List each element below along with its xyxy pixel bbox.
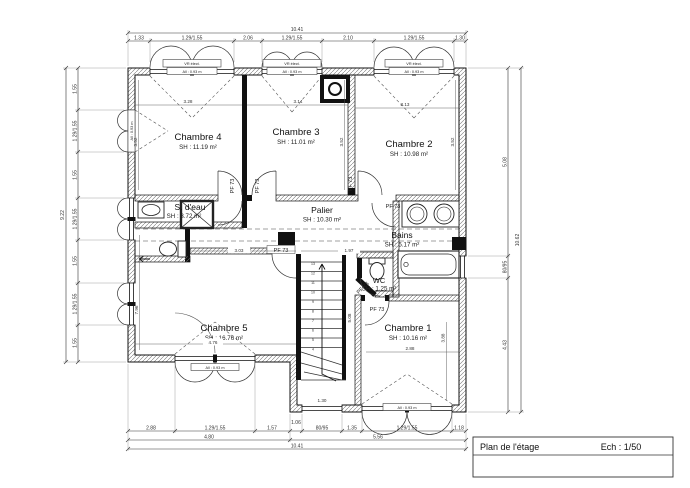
stair-step-number: 11 [311, 281, 315, 285]
dim-bottom-seg: 1.18 [454, 426, 464, 432]
dim-c1-height: 3.88 [441, 333, 446, 342]
dim-hall-east: 1.97 [345, 248, 354, 253]
window-swing-dashed [262, 76, 322, 112]
door-label-pf73: PF 73 [370, 307, 385, 313]
window-sill-label: All : 0.93 m [206, 366, 225, 370]
dim-right-seg: 4.43 [503, 340, 509, 350]
stair-step-number: 9 [312, 300, 314, 304]
dim-left-seg: 1.55 [73, 338, 79, 348]
room-area-chambre1: SH : 10.16 m² [389, 335, 427, 342]
dim-top-seg: 2.06 [243, 36, 253, 42]
stair-step-number: 4 [312, 348, 314, 352]
room-label-palier: Palier [311, 205, 333, 215]
door-chambre5 [272, 254, 296, 278]
room-area-sdeau: SH : 3.72 m² [167, 213, 202, 220]
dim-c2-width: 3.13 [401, 102, 410, 107]
window-swing-dashed [135, 110, 168, 152]
winder-treads [301, 352, 346, 380]
dim-bottom-seg: 1.35 [347, 426, 357, 432]
floor-plan-svg: VR élect. All : 0.93 m VR élect. All : 0… [0, 0, 690, 488]
stair-step-number: 10 [311, 291, 315, 295]
shutter-arcs [118, 110, 129, 152]
room-label-sdeau: S. d'eau [175, 202, 206, 212]
stair-step-number: 13 [311, 262, 315, 266]
window-swing-dashed [374, 76, 454, 118]
bathtub [398, 251, 459, 278]
dim-bottom-seg: 1.29/1.55 [397, 426, 418, 432]
stair-step-number: 8 [312, 310, 314, 314]
dim-top-seg: 2.10 [343, 36, 353, 42]
dim-bottom-seg: 2.88 [146, 426, 156, 432]
dim-right-seg: 5.08 [503, 157, 509, 167]
washbasin [138, 202, 164, 218]
dim-bottom-part: 4.80 [204, 435, 214, 441]
stair-step-number: 7 [312, 319, 314, 323]
door-label-pf73: PF 73 [255, 179, 261, 194]
dim-bottom-seg: 80/95 [316, 426, 329, 432]
dim-top-seg: 1.29/1.55 [404, 36, 425, 42]
dim-top-seg: 1.30 [455, 36, 465, 42]
room-label-bains: Bains [391, 230, 412, 240]
dim-c1-width: 2.88 [406, 346, 415, 351]
window-top-3: VR élect. All : 0.93 m [374, 47, 454, 118]
door-chambre2 [358, 171, 382, 195]
dim-bottom-total: 10.41 [291, 444, 304, 450]
window-sill-label: All : 0.93 m [405, 70, 424, 74]
dim-right-seg: 80/95 [503, 261, 509, 274]
stair-step-number: 5 [312, 338, 314, 342]
room-area-chambre2: SH : 10.98 m² [390, 151, 428, 158]
room-label-chambre1: Chambre 1 [385, 323, 432, 334]
post-right [452, 237, 466, 250]
room-label-chambre5: Chambre 5 [201, 323, 248, 334]
dim-c4-height: 3.52 [133, 137, 138, 146]
door-label-pf73: PF 73 [230, 179, 236, 194]
room-area-chambre4: SH : 11.19 m² [179, 144, 217, 151]
dim-bottom-seg: 1.57 [267, 426, 277, 432]
dim-bottom-seg: 1.06 [291, 420, 301, 426]
dim-top-seg: 1.29/1.55 [282, 36, 303, 42]
door-sdeau [218, 201, 242, 225]
dim-c4-width: 3.28 [184, 99, 193, 104]
dim-left-total: 9.22 [60, 210, 66, 220]
stair-step-number: 6 [312, 329, 314, 333]
room-label-wc: WC [373, 276, 386, 285]
window-sill-label: All : 0.93 m [183, 70, 202, 74]
dim-ext-window: 1.30 [318, 398, 327, 403]
drawing-scale: Ech : 1/50 [601, 442, 642, 452]
dim-c5-width: 4.76 [209, 340, 218, 345]
dim-palier-width: 3.03 [235, 248, 244, 253]
staircase: 13 12 11 10 9 8 7 6 5 4 [301, 262, 346, 381]
room-label-chambre4: Chambre 4 [175, 132, 222, 143]
room-area-palier: SH : 10.30 m² [303, 217, 341, 224]
toilet-wc1 [160, 241, 187, 257]
room-label-chambre3: Chambre 3 [273, 127, 320, 138]
window-shutter-label: VR élect. [184, 62, 199, 66]
door-label-pf73: PF 73 [386, 204, 401, 210]
shutter-arcs [118, 198, 129, 240]
drawing-title: Plan de l'étage [480, 442, 539, 452]
window-shutter-label: VR élect. [406, 62, 421, 66]
dim-left-seg: 1.29/1.55 [73, 208, 79, 229]
title-block: Plan de l'étage Ech : 1/50 [473, 437, 673, 477]
dim-bottom-part: 5.56 [373, 435, 383, 441]
window-swing-dashed [150, 76, 234, 118]
window-swing-dashed [362, 374, 452, 404]
room-area-bains: SH : 5.17 m² [385, 242, 420, 249]
dim-left-seg: 1.55 [73, 256, 79, 266]
post-center [278, 232, 295, 245]
double-sink [402, 201, 459, 227]
dim-right-total: 10.62 [515, 234, 521, 247]
dim-top-total: 10.41 [291, 27, 304, 33]
dim-top-seg: 1.33 [134, 36, 144, 42]
dim-top-seg: 1.29/1.55 [182, 36, 203, 42]
dim-c3-height: 3.52 [339, 137, 344, 146]
dim-c3-width: 3.14 [294, 99, 303, 104]
dim-bottom-seg: 1.29/1.55 [205, 426, 226, 432]
dim-stair-height: 5.08 [347, 313, 352, 322]
dim-left-seg: 1.29/1.55 [73, 293, 79, 314]
chimney-flue [322, 77, 348, 101]
door-chambre1 [365, 301, 389, 325]
room-area-chambre3: SH : 11.01 m² [277, 139, 315, 146]
window-sill-label: All : 0.93 m [283, 70, 302, 74]
stair-direction-arrow [319, 264, 336, 381]
window-shutter-label: VR élect. [284, 62, 299, 66]
window-right [459, 256, 467, 278]
window-bottom-small: 1.30 [302, 398, 342, 413]
window-sill-label: All : 0.93 m [398, 406, 417, 410]
dim-c2-height: 3.52 [450, 137, 455, 146]
door-label-pf73: PF 73 [348, 177, 354, 192]
dim-left-seg: 1.55 [73, 170, 79, 180]
shutter-arcs [118, 283, 129, 325]
drawing-sheet: VR élect. All : 0.93 m VR élect. All : 0… [0, 0, 690, 488]
dim-c5-height: 7.96 [134, 305, 139, 314]
dim-left-seg: 1.55 [73, 84, 79, 94]
window-top-1: VR élect. All : 0.93 m [150, 46, 234, 118]
dim-left-seg: 1.29/1.55 [73, 120, 79, 141]
window-top-2: VR élect. All : 0.93 m [262, 52, 322, 112]
room-label-chambre2: Chambre 2 [386, 139, 433, 150]
window-left-1: All : 0.93 m [118, 110, 169, 152]
stair-step-number: 12 [311, 272, 315, 276]
